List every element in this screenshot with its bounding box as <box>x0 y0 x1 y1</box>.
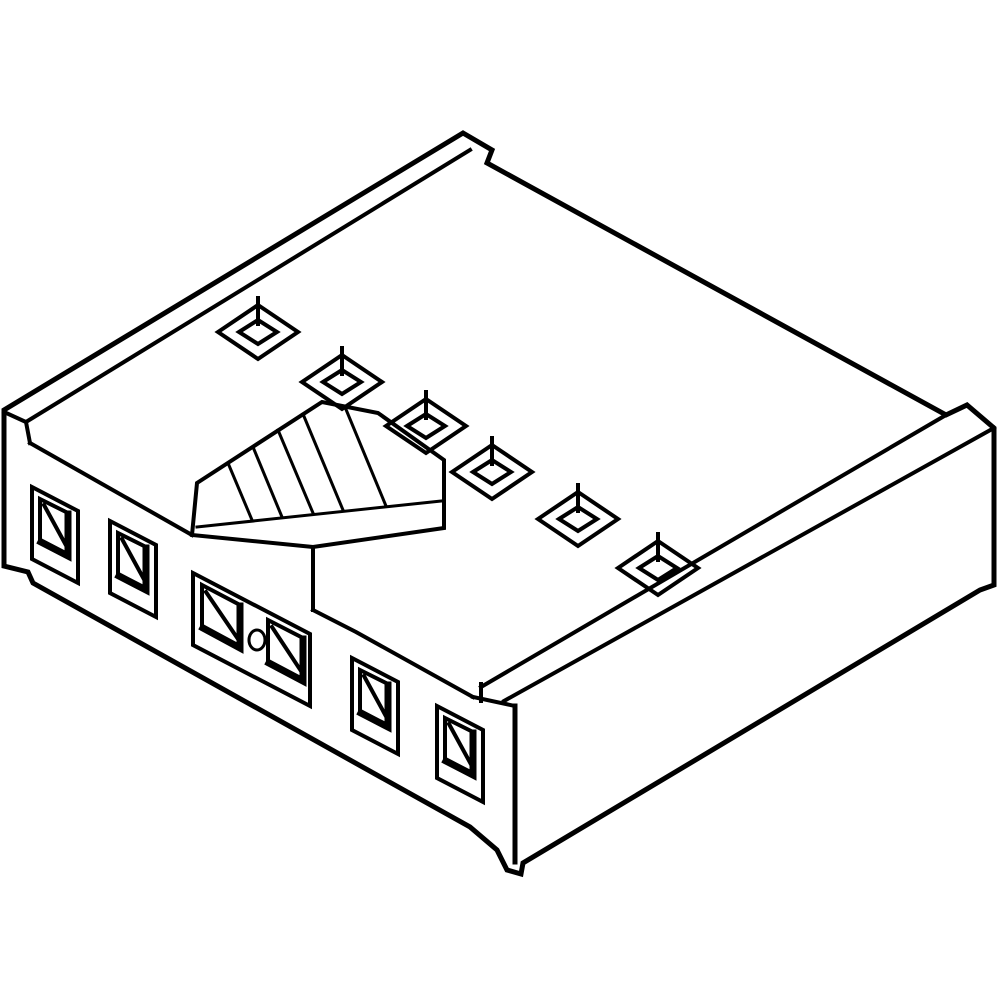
connector-line-drawing <box>0 0 1000 1000</box>
image-canvas <box>0 0 1000 1000</box>
body-silhouette <box>4 133 994 874</box>
